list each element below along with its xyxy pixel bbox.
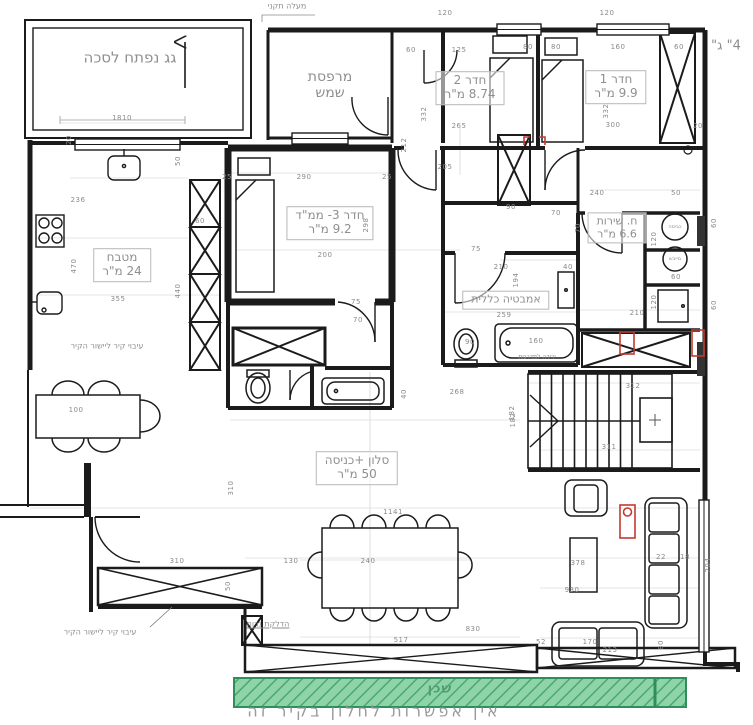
bed-room1 (542, 38, 583, 142)
floor-plan: גג נפתח לסכהמרפסתשמשחדר 28.74 מ"רחדר 19.… (0, 0, 753, 725)
bed-room2 (490, 36, 533, 142)
coffee-table-icon (570, 538, 597, 592)
kitchen-table (36, 381, 160, 452)
dimension-lines (30, 123, 700, 645)
door-room2 (424, 50, 457, 83)
small-tub-icon (322, 378, 384, 404)
living-window (699, 500, 709, 652)
red-box-3 (620, 505, 635, 538)
room2-window (497, 24, 541, 35)
sofa-small-icon (552, 622, 644, 666)
door-bathroom (455, 253, 505, 303)
plan-linework (0, 0, 753, 725)
bathtub-icon (495, 324, 577, 362)
walls (0, 30, 738, 672)
door-mamad (338, 302, 375, 342)
room1-window (597, 24, 669, 35)
kitchen-sink-icon (108, 149, 140, 180)
stairs (528, 374, 672, 468)
bottom-wall-hatch (245, 645, 735, 672)
door-service (582, 213, 622, 253)
kitchen-fixtures (31, 149, 140, 314)
armchair-icon (565, 480, 607, 516)
toilet-icon (454, 329, 478, 367)
sofa-long-icon (645, 498, 687, 628)
doors (95, 50, 622, 562)
green-neighbor-strip (234, 678, 686, 707)
balcony-window (292, 133, 348, 144)
wc-toilet-icon (246, 370, 270, 403)
washing-machine-icon (662, 214, 688, 240)
door-wc (290, 370, 310, 400)
pergola-hatch (98, 568, 262, 627)
service-cabinet (658, 290, 688, 322)
door-balcony (352, 97, 388, 135)
bath-cabinet (558, 272, 574, 308)
service-vent-top (697, 216, 705, 246)
door-terrace (95, 517, 140, 562)
dining-table (308, 515, 472, 621)
access-bracket (262, 15, 315, 22)
bed-room3 (236, 158, 274, 292)
roof-terrace-outline (25, 20, 251, 138)
kitchen-window (75, 139, 180, 150)
stove-icon (36, 215, 64, 247)
door-corridor-left (398, 150, 436, 190)
